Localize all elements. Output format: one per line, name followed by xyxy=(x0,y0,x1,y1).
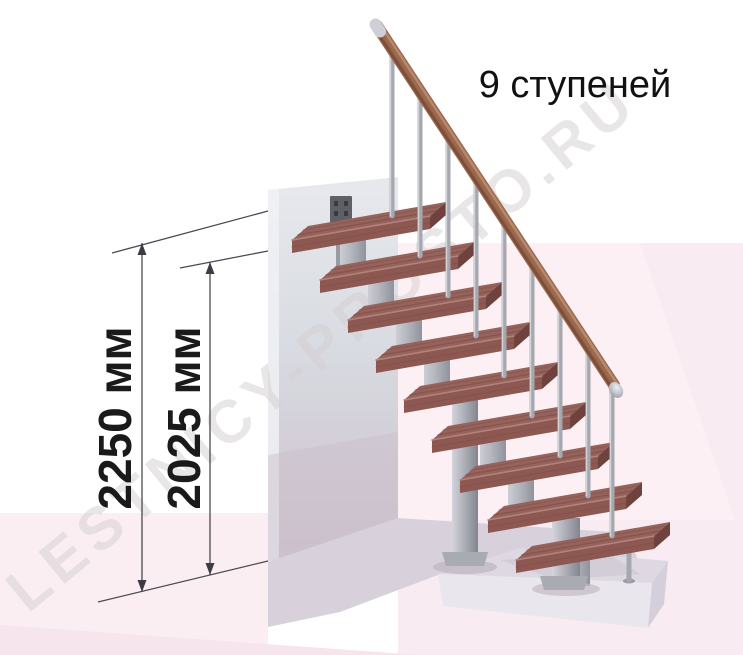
staircase-illustration: LESTNICY-PROSTO.RU xyxy=(0,0,743,655)
baluster-7 xyxy=(557,304,563,458)
baluster-3 xyxy=(445,134,451,298)
baluster-4 xyxy=(473,176,479,338)
baluster-8 xyxy=(585,346,591,498)
column-base-plate xyxy=(442,552,488,566)
dimension-label-2025: 2025 мм xyxy=(158,326,210,509)
column-base-plate xyxy=(540,576,588,590)
handrail-top-cap xyxy=(376,25,381,32)
dimension-label-2250: 2250 мм xyxy=(89,326,141,509)
baluster-6 xyxy=(529,261,535,418)
staircase-diagram: LESTNICY-PROSTO.RU xyxy=(0,0,743,655)
baluster-9 xyxy=(609,388,615,538)
baluster-1 xyxy=(389,49,395,218)
baluster-5 xyxy=(501,219,507,378)
page-title: 9 ступеней xyxy=(479,64,672,106)
baluster-2 xyxy=(417,92,423,258)
